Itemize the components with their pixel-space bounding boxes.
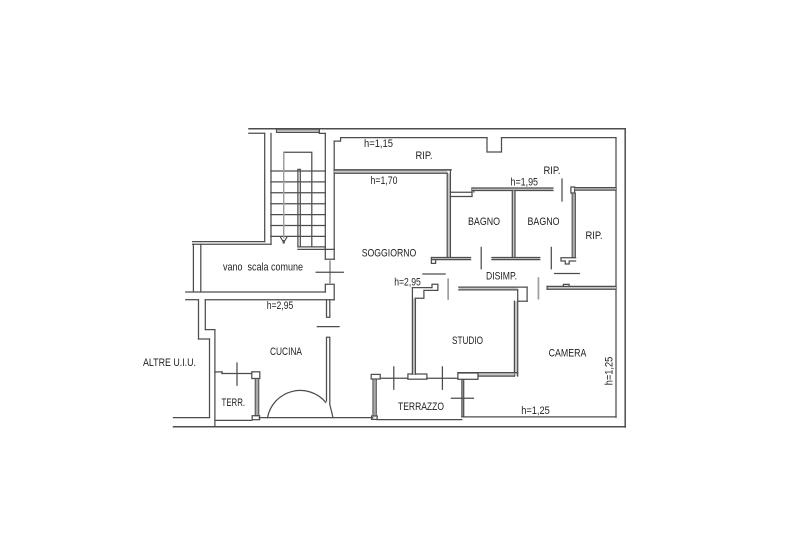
svg-text:RIP.: RIP. — [586, 230, 603, 242]
svg-text:BAGNO: BAGNO — [528, 216, 560, 228]
svg-text:RIP.: RIP. — [416, 150, 433, 162]
svg-text:BAGNO: BAGNO — [468, 216, 500, 228]
svg-text:CAMERA: CAMERA — [549, 347, 587, 359]
svg-text:STUDIO: STUDIO — [452, 335, 483, 347]
svg-text:CUCINA: CUCINA — [270, 346, 302, 358]
svg-text:RIP.: RIP. — [544, 165, 561, 177]
svg-text:h=1,25: h=1,25 — [604, 357, 616, 386]
svg-text:h=1,15: h=1,15 — [364, 138, 393, 150]
svg-text:vano scala comune: vano scala comune — [223, 261, 303, 273]
svg-text:h=1,25: h=1,25 — [521, 405, 550, 417]
svg-text:h=2,95: h=2,95 — [394, 276, 421, 288]
svg-text:h=2,95: h=2,95 — [267, 300, 294, 312]
svg-text:TERR.: TERR. — [222, 397, 246, 409]
svg-text:TERRAZZO: TERRAZZO — [398, 401, 444, 413]
svg-text:h=1,95: h=1,95 — [511, 177, 539, 189]
svg-text:DISIMP.: DISIMP. — [486, 270, 517, 282]
svg-text:ALTRE U.I.U.: ALTRE U.I.U. — [143, 357, 196, 369]
svg-text:h=1,70: h=1,70 — [371, 175, 398, 187]
svg-text:SOGGIORNO: SOGGIORNO — [362, 248, 417, 260]
